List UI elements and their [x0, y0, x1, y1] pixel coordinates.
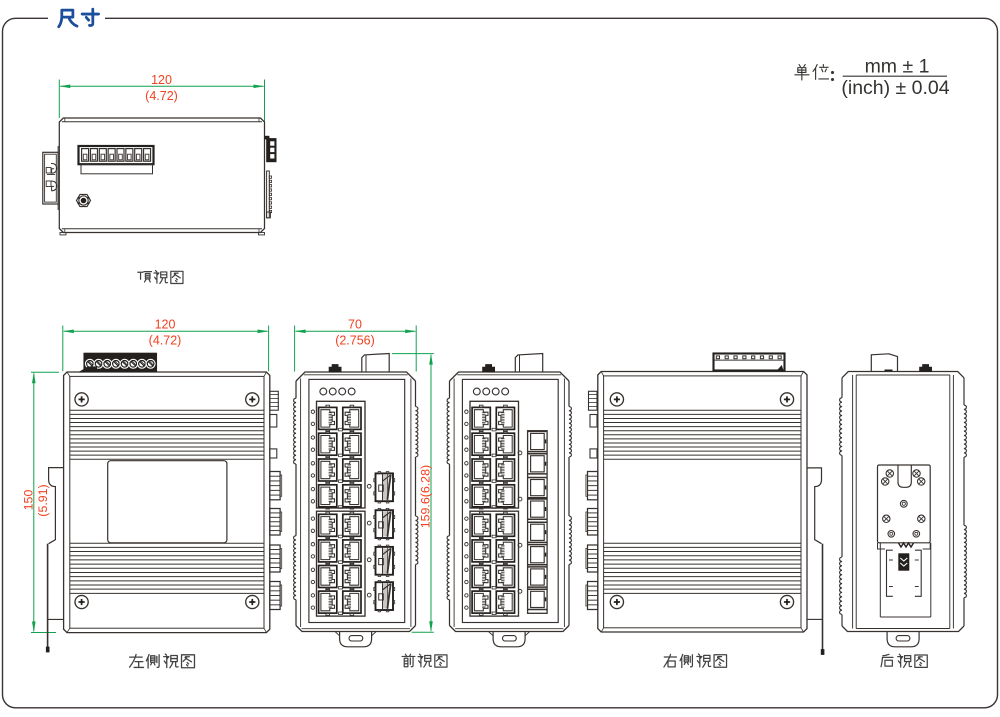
svg-text:120: 120 — [151, 73, 172, 87]
svg-text:159.6(6.28): 159.6(6.28) — [419, 465, 433, 528]
svg-text:(4.72): (4.72) — [145, 89, 178, 103]
svg-text:120: 120 — [155, 318, 176, 332]
svg-text:(2.756): (2.756) — [335, 334, 375, 348]
svg-text:(inch) ± 0.04: (inch) ± 0.04 — [841, 77, 949, 99]
svg-text:150: 150 — [22, 490, 36, 511]
svg-text:mm ± 1: mm ± 1 — [865, 56, 930, 78]
svg-text:(5.91): (5.91) — [36, 484, 50, 516]
svg-text:(4.72): (4.72) — [149, 334, 182, 348]
svg-text:70: 70 — [348, 318, 362, 332]
